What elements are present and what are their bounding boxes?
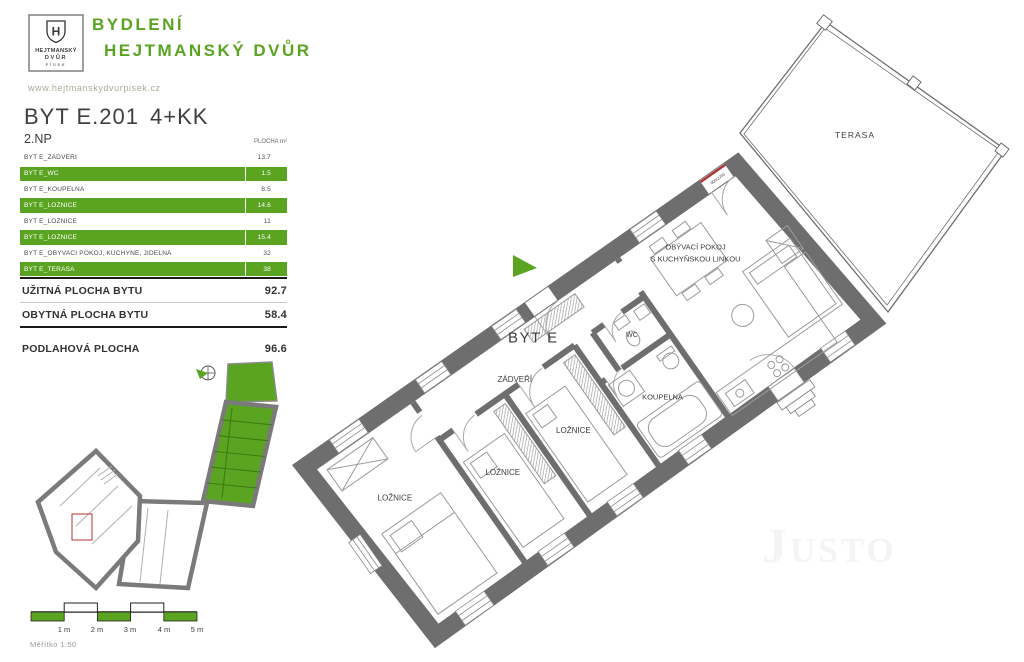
room-label: BYT E_WC xyxy=(20,170,245,177)
brand-title-line1: BYDLENÍ xyxy=(92,15,184,35)
company-logo: H HEJTMANSKÝ DVŮR PÍSEK xyxy=(28,14,84,72)
scale-bar: 1 m 2 m 3 m 4 m 5 m xyxy=(28,601,208,637)
total-row-usable: UŽITNÁ PLOCHA BYTU92.7 xyxy=(20,277,287,302)
room-area-table: BYT E_ZÁDVEŘÍ13.7 BYT E_WC1.5 BYT E_KOUP… xyxy=(20,150,287,277)
area-column-header: PLOCHA m² xyxy=(227,139,287,145)
table-row: BYT E_OBÝVACÍ POKOJ, KUCHYNĚ, JÍDELNA32 xyxy=(20,245,287,261)
room-label-obyvaci-line2: S KUCHYŇSKOU LINKOU xyxy=(651,254,741,263)
scale-label: 5 m xyxy=(191,625,204,634)
logo-name-line2: DVŮR xyxy=(45,53,67,61)
scale-label: 4 m xyxy=(158,625,171,634)
room-label-loznice-3: LOŽNICE xyxy=(556,426,591,435)
scale-label: 3 m xyxy=(124,625,137,634)
room-label: BYT E_OBÝVACÍ POKOJ, KUCHYNĚ, JÍDELNA xyxy=(20,250,245,257)
room-label: BYT E_KOUPELNA xyxy=(20,186,245,193)
room-label: BYT E_LOŽNICE xyxy=(20,202,245,209)
table-row: BYT E_LOŽNICE11 xyxy=(20,214,287,230)
unit-floor: 2.NP xyxy=(24,132,52,146)
area-totals: UŽITNÁ PLOCHA BYTU92.7 OBYTNÁ PLOCHA BYT… xyxy=(20,277,287,359)
room-area: 14.6 xyxy=(245,198,287,212)
unit-label: BYT E xyxy=(508,329,559,346)
total-value: 58.4 xyxy=(227,309,287,321)
room-label-obyvaci-line1: OBÝVACÍ POKOJ xyxy=(665,242,726,251)
table-row-highlighted: BYT E_LOŽNICE15.4 xyxy=(20,230,287,244)
mini-unit-e-wing xyxy=(203,402,276,506)
room-label-koupelna: KOUPELNA xyxy=(642,393,683,402)
room-label: BYT E_TERASA xyxy=(20,266,245,273)
room-label-loznice-1: LOŽNICE xyxy=(378,493,413,502)
mini-terrace xyxy=(226,362,277,402)
room-label-wc: WC xyxy=(626,332,638,339)
table-row-highlighted: BYT E_LOŽNICE14.6 xyxy=(20,198,287,212)
table-row-highlighted: BYT E_WC1.5 xyxy=(20,167,287,181)
room-label-loznice-2: LOŽNICE xyxy=(485,468,520,477)
room-label: BYT E_ZÁDVEŘÍ xyxy=(20,154,245,161)
table-row: BYT E_KOUPELNA8.5 xyxy=(20,182,287,198)
north-arrow-icon xyxy=(196,366,215,380)
room-area: 15.4 xyxy=(245,230,287,244)
total-row-floor: PODLAHOVÁ PLOCHA96.6 xyxy=(20,326,287,359)
scale-label: 1 m xyxy=(58,625,71,634)
table-row: BYT E_ZÁDVEŘÍ13.7 xyxy=(20,150,287,166)
building-overview-map xyxy=(20,358,292,604)
room-label-zadveri: ZÁDVEŘÍ xyxy=(497,375,532,384)
entrance-marker xyxy=(513,255,537,277)
table-row-highlighted: BYT E_TERASA38 xyxy=(20,262,287,276)
scale-caption: Měřítko 1:50 xyxy=(30,640,77,649)
room-area: 11 xyxy=(245,214,287,230)
unit-code: BYT E.201 xyxy=(24,104,139,130)
room-label-terasa: TERASA xyxy=(835,130,875,140)
brand-title-line2: HEJTMANSKÝ DVŮR xyxy=(104,41,312,61)
logo-city: PÍSEK xyxy=(46,62,67,67)
watermark: Justo xyxy=(762,516,897,574)
shield-icon: H xyxy=(47,21,65,43)
scale-label: 2 m xyxy=(91,625,104,634)
room-area: 1.5 xyxy=(245,167,287,181)
total-row-living: OBYTNÁ PLOCHA BYTU58.4 xyxy=(20,302,287,326)
total-value: 96.6 xyxy=(227,343,287,355)
room-label: BYT E_LOŽNICE xyxy=(20,234,245,241)
room-area: 13.7 xyxy=(245,150,287,166)
total-value: 92.7 xyxy=(227,285,287,297)
room-label: BYT E_LOŽNICE xyxy=(20,218,245,225)
unit-disposition: 4+KK xyxy=(150,104,208,130)
room-area: 38 xyxy=(245,262,287,276)
total-label: PODLAHOVÁ PLOCHA xyxy=(20,343,227,355)
website-url: www.hejtmanskydvurpisek.cz xyxy=(28,83,161,93)
logo-initial: H xyxy=(52,25,61,39)
logo-name-line1: HEJTMANSKÝ xyxy=(35,47,77,54)
main-floor-plan: TERASA xyxy=(285,5,1024,660)
room-area: 8.5 xyxy=(245,182,287,198)
total-label: UŽITNÁ PLOCHA BYTU xyxy=(20,285,227,297)
total-label: OBYTNÁ PLOCHA BYTU xyxy=(20,309,227,321)
room-area: 32 xyxy=(245,245,287,261)
